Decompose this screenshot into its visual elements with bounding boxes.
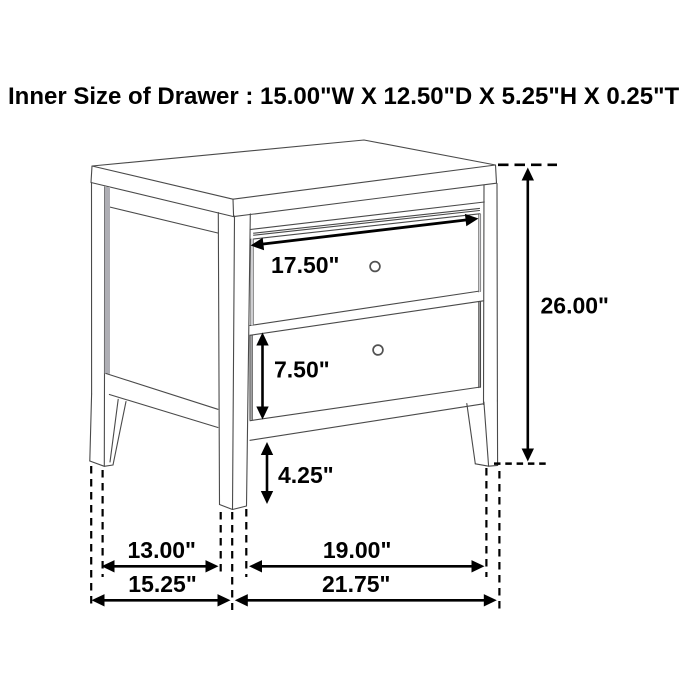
svg-text:7.50": 7.50" — [274, 357, 330, 383]
svg-text:21.75": 21.75" — [322, 571, 390, 597]
svg-text:4.25": 4.25" — [278, 462, 334, 488]
svg-text:15.25": 15.25" — [128, 571, 196, 597]
svg-text:19.00": 19.00" — [323, 537, 391, 563]
svg-text:17.50": 17.50" — [271, 252, 339, 278]
svg-text:26.00": 26.00" — [541, 293, 609, 319]
svg-text:13.00": 13.00" — [128, 537, 196, 563]
